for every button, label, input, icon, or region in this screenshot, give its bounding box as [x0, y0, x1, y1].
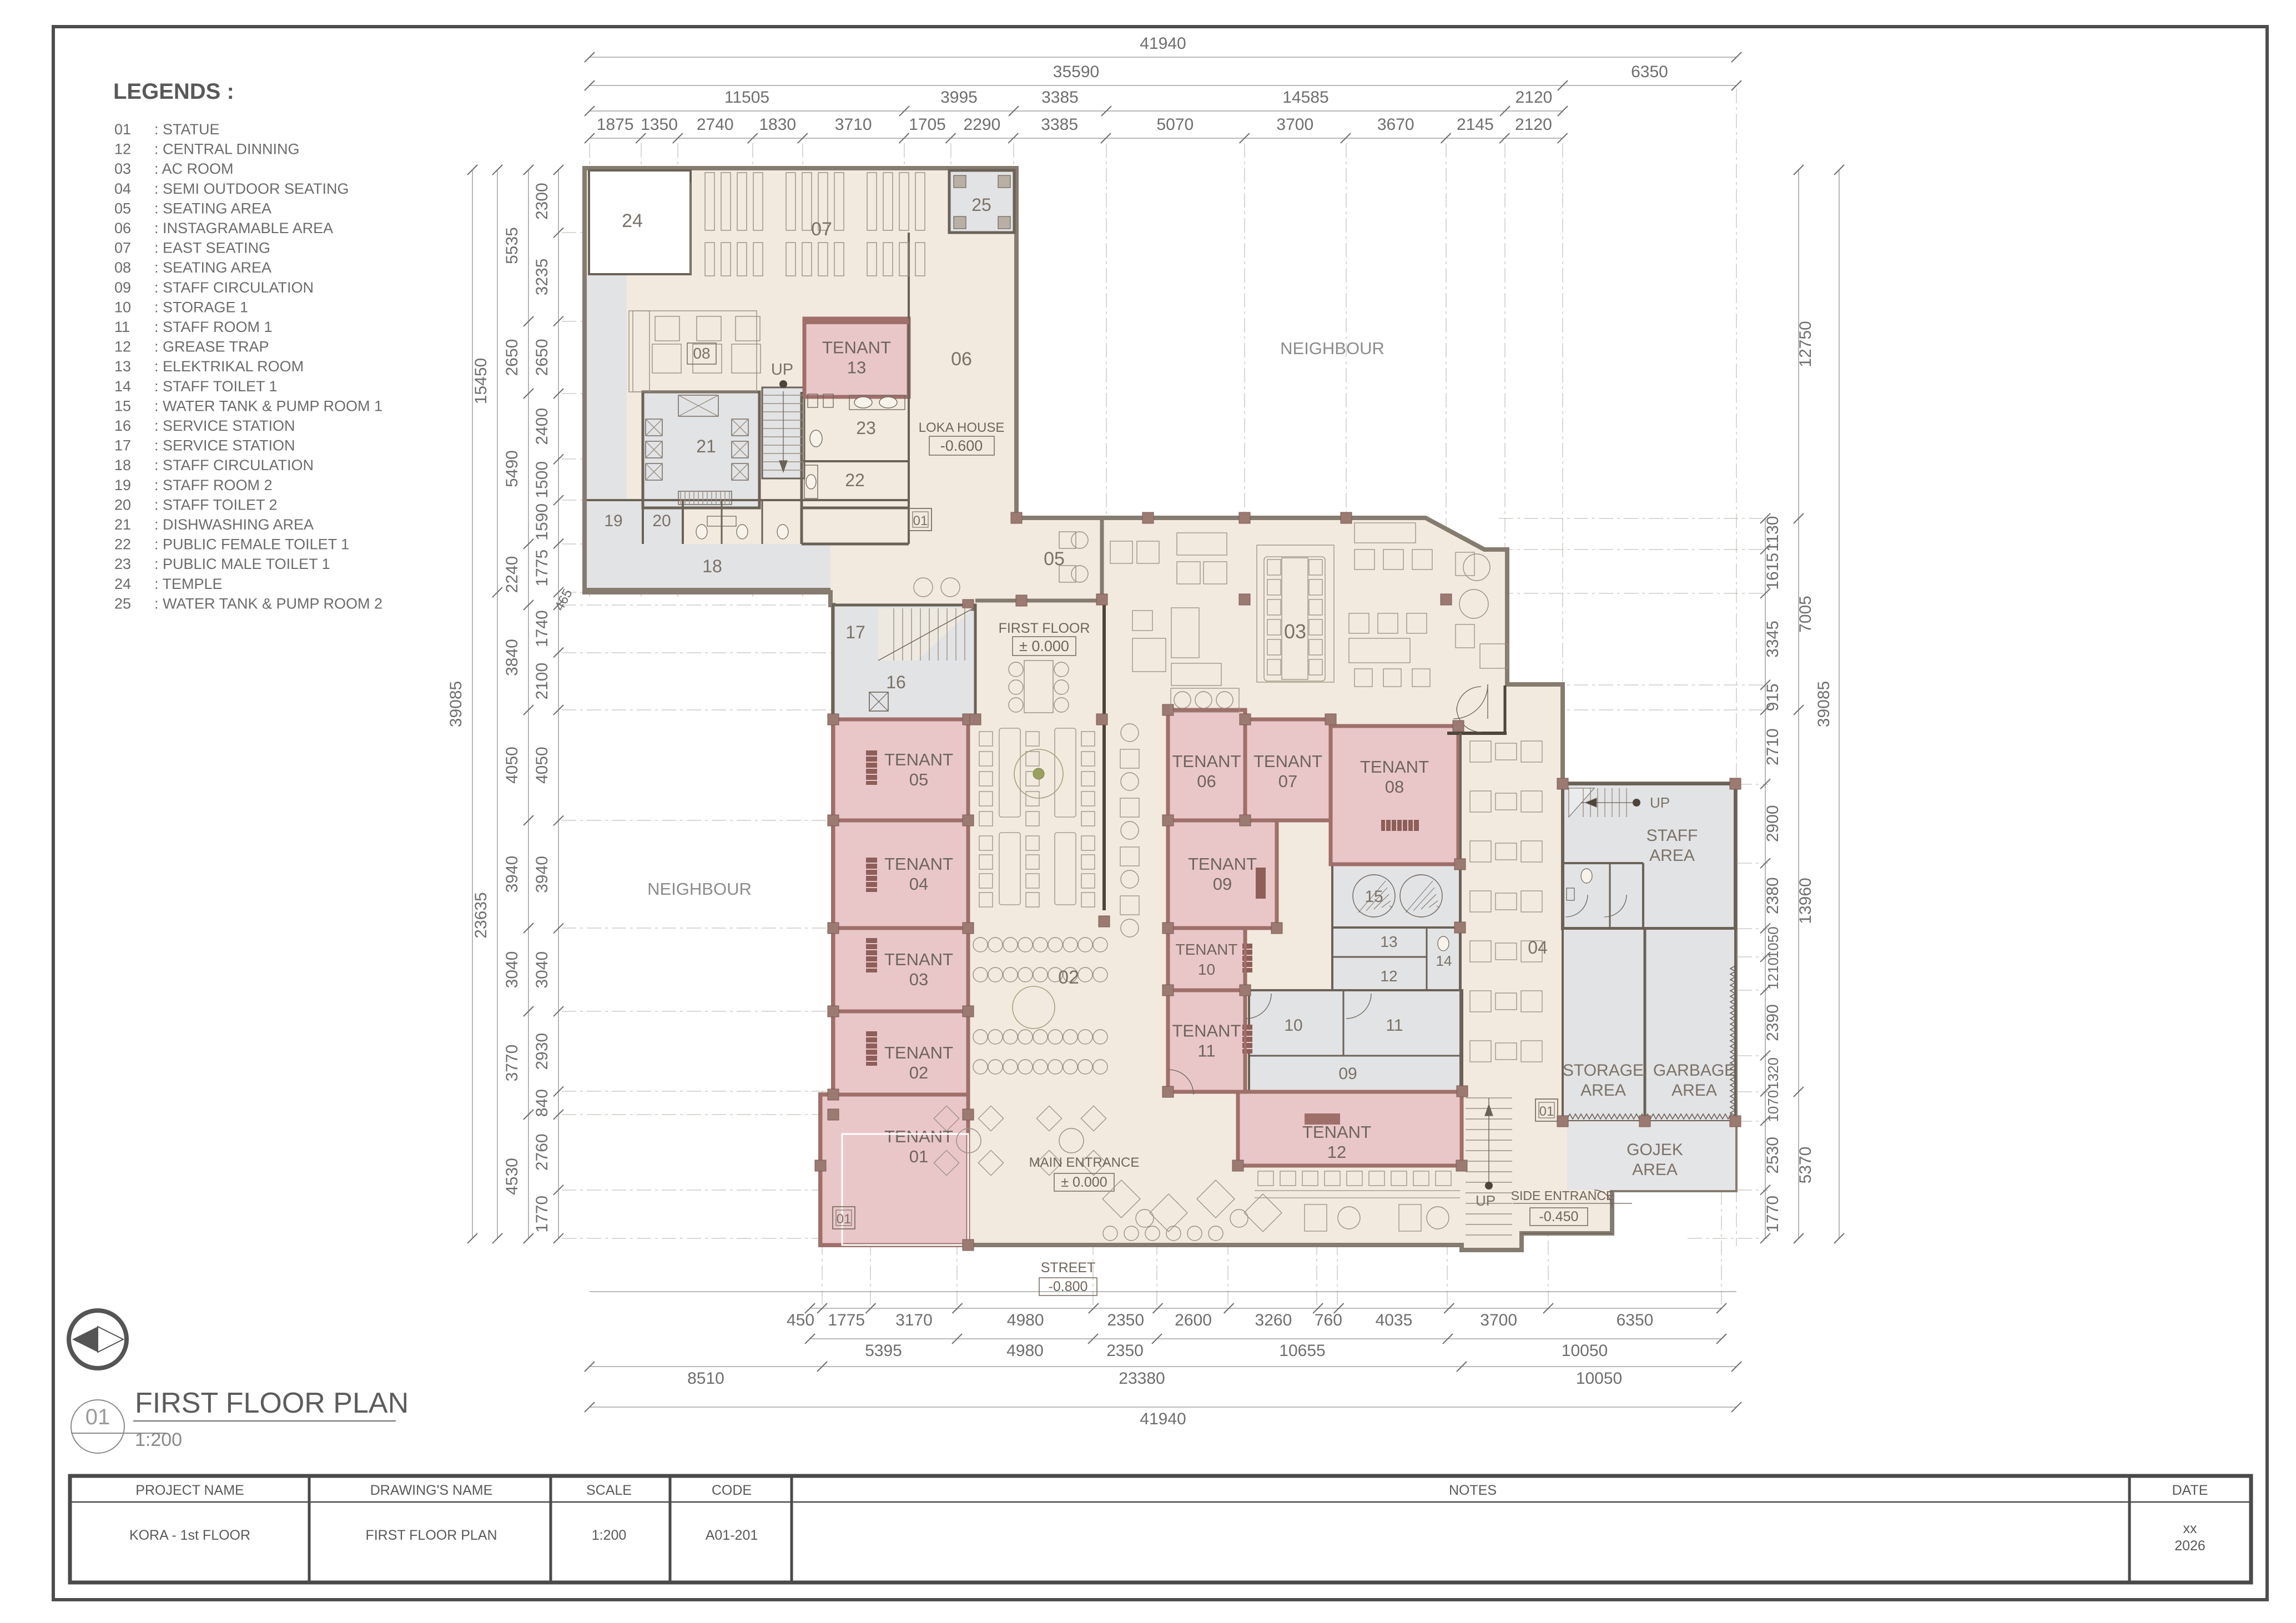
svg-text:09: 09: [114, 279, 131, 296]
svg-text:AREA: AREA: [1632, 1161, 1678, 1179]
svg-text:23635: 23635: [472, 892, 490, 938]
svg-text:12: 12: [1327, 1142, 1346, 1162]
svg-text:DRAWING'S NAME: DRAWING'S NAME: [370, 1483, 493, 1498]
svg-text:4530: 4530: [503, 1158, 521, 1195]
svg-text:08: 08: [1385, 777, 1404, 797]
svg-text:2300: 2300: [533, 183, 551, 220]
svg-text:450: 450: [787, 1311, 814, 1329]
svg-text:TENANT: TENANT: [1253, 752, 1322, 771]
svg-text:14585: 14585: [1282, 88, 1328, 107]
svg-text:3170: 3170: [895, 1311, 933, 1329]
svg-text:08: 08: [693, 345, 710, 362]
svg-text:TENANT: TENANT: [1176, 941, 1238, 958]
svg-text:TENANT: TENANT: [822, 338, 891, 357]
svg-text:1320: 1320: [1765, 1057, 1781, 1090]
svg-text:8510: 8510: [687, 1369, 724, 1388]
svg-text:4050: 4050: [503, 747, 521, 784]
svg-text:22: 22: [845, 470, 865, 490]
svg-text:03: 03: [114, 160, 131, 177]
svg-text:41940: 41940: [1140, 34, 1186, 53]
svg-text:1130: 1130: [1764, 516, 1782, 552]
svg-text:AREA: AREA: [1580, 1081, 1626, 1100]
svg-text:1615: 1615: [1764, 553, 1782, 590]
svg-text:: STAFF TOILET 2: : STAFF TOILET 2: [154, 496, 278, 513]
svg-text:05: 05: [1044, 548, 1065, 569]
svg-text:10050: 10050: [1576, 1369, 1622, 1388]
svg-text:1070: 1070: [1765, 1090, 1781, 1122]
svg-text:: ELEKTRIKAL ROOM: : ELEKTRIKAL ROOM: [154, 358, 304, 375]
svg-text:23: 23: [856, 418, 876, 438]
svg-text:06: 06: [951, 349, 972, 370]
svg-text:760: 760: [1315, 1311, 1342, 1329]
svg-text:11: 11: [1386, 1016, 1403, 1035]
svg-text:2290: 2290: [964, 115, 1001, 134]
svg-text:1350: 1350: [641, 115, 678, 134]
svg-text:19: 19: [604, 512, 622, 530]
svg-text:15: 15: [1364, 888, 1383, 906]
svg-text:915: 915: [1764, 683, 1782, 711]
svg-text:2350: 2350: [1107, 1311, 1144, 1329]
svg-text:TENANT: TENANT: [1172, 752, 1241, 771]
svg-text:1705: 1705: [909, 115, 946, 134]
svg-text:3385: 3385: [1041, 88, 1079, 107]
svg-text:10050: 10050: [1562, 1342, 1608, 1360]
svg-text:5070: 5070: [1156, 115, 1194, 134]
svg-text:3700: 3700: [1276, 115, 1313, 134]
svg-text:05: 05: [909, 770, 928, 789]
svg-text:16: 16: [114, 417, 131, 434]
svg-text:STREET: STREET: [1041, 1260, 1096, 1276]
svg-text:-0.800: -0.800: [1049, 1279, 1088, 1294]
svg-text:2380: 2380: [1764, 877, 1782, 914]
svg-text:1770: 1770: [533, 1196, 551, 1233]
svg-text:07: 07: [114, 240, 131, 256]
svg-text:FIRST FLOOR PLAN: FIRST FLOOR PLAN: [365, 1528, 497, 1543]
svg-text:4050: 4050: [533, 747, 551, 784]
svg-text:17: 17: [845, 622, 865, 642]
svg-text:06: 06: [114, 220, 131, 236]
svg-text:21: 21: [696, 436, 716, 456]
svg-text:2600: 2600: [1175, 1311, 1212, 1329]
svg-text:2240: 2240: [503, 556, 521, 593]
svg-text:TENANT: TENANT: [1360, 757, 1429, 777]
svg-text:3040: 3040: [533, 951, 551, 989]
svg-text:: STAFF ROOM 2: : STAFF ROOM 2: [154, 477, 273, 493]
svg-text:13: 13: [847, 358, 866, 377]
svg-text:: WATER TANK & PUMP ROOM 2: : WATER TANK & PUMP ROOM 2: [154, 595, 382, 612]
svg-text:SCALE: SCALE: [586, 1483, 632, 1498]
svg-text:: SEMI OUTDOOR SEATING: : SEMI OUTDOOR SEATING: [154, 180, 349, 197]
svg-text:: STATUE: : STATUE: [154, 121, 220, 138]
svg-text:3260: 3260: [1255, 1311, 1292, 1329]
svg-text:± 0.000: ± 0.000: [1019, 638, 1069, 654]
svg-text:-0.450: -0.450: [1539, 1209, 1579, 1224]
svg-text:SIDE ENTRANCE: SIDE ENTRANCE: [1511, 1188, 1615, 1203]
svg-text:FIRST FLOOR: FIRST FLOOR: [999, 621, 1090, 636]
svg-text:6350: 6350: [1631, 63, 1668, 81]
svg-text:13960: 13960: [1796, 878, 1815, 924]
svg-text:STAFF: STAFF: [1647, 826, 1698, 845]
svg-text:: STAFF CIRCULATION: : STAFF CIRCULATION: [154, 279, 314, 296]
svg-text:3940: 3940: [503, 856, 521, 893]
svg-text:2740: 2740: [697, 115, 734, 134]
svg-text:: INSTAGRAMABLE AREA: : INSTAGRAMABLE AREA: [154, 220, 333, 236]
svg-text:2120: 2120: [1515, 115, 1552, 134]
svg-text:2760: 2760: [533, 1133, 551, 1171]
svg-text:: STAFF ROOM 1: : STAFF ROOM 1: [154, 319, 273, 335]
svg-text:23380: 23380: [1119, 1369, 1165, 1388]
svg-text:03: 03: [909, 970, 928, 989]
svg-text:39085: 39085: [1815, 681, 1833, 727]
svg-text:840: 840: [533, 1089, 551, 1117]
svg-text:23: 23: [114, 556, 131, 572]
svg-text:: DISHWASHING AREA: : DISHWASHING AREA: [154, 516, 314, 533]
svg-text:GARBAGE: GARBAGE: [1653, 1061, 1735, 1080]
svg-text:2350: 2350: [1106, 1342, 1144, 1360]
svg-text:KORA - 1st FLOOR: KORA - 1st FLOOR: [129, 1528, 250, 1543]
svg-text:3385: 3385: [1041, 115, 1078, 134]
svg-text:13: 13: [114, 358, 131, 375]
svg-text:: STAFF CIRCULATION: : STAFF CIRCULATION: [154, 457, 314, 473]
svg-text:02: 02: [1058, 967, 1079, 988]
svg-text:: SERVICE STATION: : SERVICE STATION: [154, 437, 295, 454]
svg-text:: PUBLIC MALE TOILET 1: : PUBLIC MALE TOILET 1: [154, 556, 330, 572]
svg-text:: STAFF TOILET 1: : STAFF TOILET 1: [154, 378, 278, 395]
svg-text:TENANT: TENANT: [884, 950, 953, 969]
svg-text:TENANT: TENANT: [884, 1043, 953, 1062]
svg-text:5395: 5395: [865, 1342, 902, 1360]
svg-text:TENANT: TENANT: [884, 854, 953, 874]
svg-text:25: 25: [114, 595, 131, 612]
svg-text:AREA: AREA: [1649, 846, 1695, 865]
svg-text:FIRST FLOOR PLAN: FIRST FLOOR PLAN: [135, 1387, 409, 1419]
svg-text:19: 19: [114, 477, 131, 493]
svg-text:41940: 41940: [1140, 1410, 1186, 1428]
svg-text:1875: 1875: [597, 115, 634, 134]
svg-text:4035: 4035: [1376, 1311, 1413, 1329]
svg-text:1775: 1775: [828, 1311, 865, 1329]
svg-text:39085: 39085: [447, 681, 465, 727]
svg-text:15450: 15450: [472, 358, 490, 404]
svg-text:TENANT: TENANT: [1188, 854, 1257, 874]
svg-text:: GREASE TRAP: : GREASE TRAP: [154, 339, 269, 355]
svg-text:1050: 1050: [1765, 926, 1781, 959]
svg-text:14: 14: [114, 378, 131, 395]
svg-text:12: 12: [1380, 967, 1397, 985]
svg-text:17: 17: [114, 437, 131, 454]
svg-text:: TEMPLE: : TEMPLE: [154, 576, 223, 592]
svg-text:CODE: CODE: [712, 1483, 752, 1498]
svg-text:1:200: 1:200: [592, 1528, 627, 1543]
svg-text:AREA: AREA: [1671, 1081, 1717, 1100]
svg-text:: SEATING AREA: : SEATING AREA: [154, 200, 271, 216]
svg-text:10655: 10655: [1279, 1342, 1325, 1360]
svg-text:01: 01: [1539, 1104, 1554, 1119]
svg-text:NEIGHBOUR: NEIGHBOUR: [1280, 339, 1384, 358]
svg-text:05: 05: [114, 200, 131, 216]
svg-text:2400: 2400: [533, 408, 551, 445]
svg-text:DATE: DATE: [2172, 1483, 2208, 1498]
svg-text:01: 01: [85, 1405, 110, 1429]
svg-text:GOJEK: GOJEK: [1627, 1141, 1683, 1159]
svg-text:UP: UP: [1650, 794, 1670, 811]
svg-text:TENANT: TENANT: [1172, 1021, 1241, 1041]
svg-text:1210: 1210: [1765, 957, 1781, 990]
svg-text:01: 01: [909, 1147, 928, 1166]
svg-text:13: 13: [1380, 933, 1397, 950]
svg-text:: PUBLIC FEMALE TOILET 1: : PUBLIC FEMALE TOILET 1: [154, 536, 349, 553]
svg-text:2930: 2930: [533, 1033, 551, 1070]
svg-text:STORAGE: STORAGE: [1563, 1061, 1644, 1080]
svg-text:TENANT: TENANT: [884, 1127, 953, 1146]
svg-text:20: 20: [114, 496, 131, 513]
svg-text:10: 10: [114, 299, 131, 315]
svg-text:-0.600: -0.600: [940, 437, 983, 454]
svg-text:1:200: 1:200: [135, 1429, 182, 1450]
svg-text:35590: 35590: [1053, 63, 1099, 81]
svg-text:21: 21: [114, 516, 131, 533]
svg-text:03: 03: [1284, 620, 1306, 643]
svg-text:1590: 1590: [533, 503, 551, 541]
svg-text:± 0.000: ± 0.000: [1061, 1175, 1107, 1190]
svg-text:1830: 1830: [759, 115, 796, 134]
svg-text:xx: xx: [2183, 1521, 2198, 1536]
svg-text:A01-201: A01-201: [706, 1528, 758, 1543]
svg-text:: SEATING AREA: : SEATING AREA: [154, 259, 271, 276]
svg-text:3040: 3040: [503, 951, 521, 989]
svg-text:2120: 2120: [1515, 88, 1553, 107]
svg-text:11: 11: [114, 319, 130, 335]
svg-text:04: 04: [114, 180, 131, 197]
svg-text:TENANT: TENANT: [1302, 1122, 1371, 1142]
svg-text:10: 10: [1198, 961, 1215, 978]
svg-text:16: 16: [886, 672, 906, 692]
svg-text:3235: 3235: [533, 259, 551, 296]
svg-text:LOKA HOUSE: LOKA HOUSE: [919, 420, 1005, 435]
svg-text:07: 07: [811, 219, 832, 240]
svg-text:1500: 1500: [533, 461, 551, 498]
svg-text:3840: 3840: [503, 639, 521, 676]
svg-text:06: 06: [1197, 772, 1216, 791]
svg-text:22: 22: [114, 536, 131, 553]
svg-text:20: 20: [652, 512, 671, 530]
svg-text:2145: 2145: [1457, 115, 1494, 134]
svg-text:3995: 3995: [940, 88, 978, 107]
svg-text:04: 04: [909, 874, 928, 894]
svg-text:12: 12: [114, 141, 131, 158]
svg-text:PROJECT NAME: PROJECT NAME: [135, 1483, 244, 1498]
svg-text:1740: 1740: [533, 610, 551, 647]
svg-text:1775: 1775: [533, 550, 551, 587]
svg-text:5535: 5535: [503, 227, 521, 264]
svg-text:12: 12: [114, 339, 131, 355]
svg-text:11505: 11505: [724, 88, 769, 107]
svg-text:NEIGHBOUR: NEIGHBOUR: [647, 879, 752, 899]
svg-text:6350: 6350: [1617, 1311, 1654, 1329]
svg-text:: SERVICE STATION: : SERVICE STATION: [154, 417, 295, 434]
svg-text:2390: 2390: [1764, 1004, 1782, 1041]
svg-text:MAIN ENTRANCE: MAIN ENTRANCE: [1029, 1155, 1140, 1170]
svg-text:5490: 5490: [503, 450, 521, 487]
svg-text:10: 10: [1284, 1016, 1302, 1035]
svg-text:2026: 2026: [2174, 1538, 2206, 1554]
svg-text:3710: 3710: [835, 115, 872, 134]
svg-text:07: 07: [1278, 772, 1297, 791]
svg-text:09: 09: [1213, 874, 1232, 894]
svg-text:3940: 3940: [533, 856, 551, 893]
svg-text:3345: 3345: [1764, 621, 1782, 658]
svg-text:04: 04: [1528, 937, 1548, 957]
svg-text:08: 08: [114, 259, 131, 276]
svg-text:2100: 2100: [533, 663, 551, 700]
svg-text:TENANT: TENANT: [884, 750, 953, 769]
svg-text:NOTES: NOTES: [1449, 1483, 1497, 1498]
svg-text:7005: 7005: [1796, 596, 1815, 633]
svg-text:UP: UP: [771, 361, 793, 379]
svg-text:09: 09: [1338, 1065, 1357, 1083]
svg-text:5370: 5370: [1796, 1147, 1815, 1184]
svg-text:2650: 2650: [503, 339, 521, 376]
svg-text:15: 15: [114, 397, 131, 414]
svg-text:12750: 12750: [1796, 321, 1815, 367]
svg-text:: WATER TANK & PUMP ROOM 1: : WATER TANK & PUMP ROOM 1: [154, 397, 382, 414]
svg-text:3670: 3670: [1377, 115, 1414, 134]
svg-text:2650: 2650: [533, 339, 551, 376]
svg-text:01: 01: [837, 1212, 852, 1227]
svg-text:2900: 2900: [1764, 805, 1782, 842]
svg-text:02: 02: [909, 1063, 928, 1082]
svg-text:2710: 2710: [1764, 728, 1782, 765]
svg-text:11: 11: [1197, 1041, 1215, 1061]
svg-text:24: 24: [622, 210, 643, 231]
svg-text:18: 18: [702, 556, 722, 576]
svg-text:LEGENDS :: LEGENDS :: [113, 79, 234, 104]
svg-text:24: 24: [114, 576, 131, 592]
svg-text:: AC ROOM: : AC ROOM: [154, 160, 234, 177]
svg-text:4980: 4980: [1006, 1342, 1044, 1360]
svg-text:2530: 2530: [1764, 1137, 1782, 1174]
svg-text:UP: UP: [1476, 1192, 1496, 1209]
svg-text:01: 01: [114, 121, 131, 138]
svg-text:1770: 1770: [1764, 1196, 1782, 1233]
svg-text:18: 18: [114, 457, 131, 473]
svg-text:25: 25: [971, 195, 991, 215]
svg-text:14: 14: [1436, 952, 1452, 969]
svg-text:4980: 4980: [1007, 1311, 1044, 1329]
svg-text:01: 01: [913, 513, 928, 528]
svg-text:: EAST SEATING: : EAST SEATING: [154, 240, 270, 256]
svg-text:3700: 3700: [1480, 1311, 1517, 1329]
svg-text:: STORAGE 1: : STORAGE 1: [154, 299, 248, 315]
svg-text:3770: 3770: [503, 1045, 521, 1082]
svg-text:: CENTRAL DINNING: : CENTRAL DINNING: [154, 141, 300, 158]
